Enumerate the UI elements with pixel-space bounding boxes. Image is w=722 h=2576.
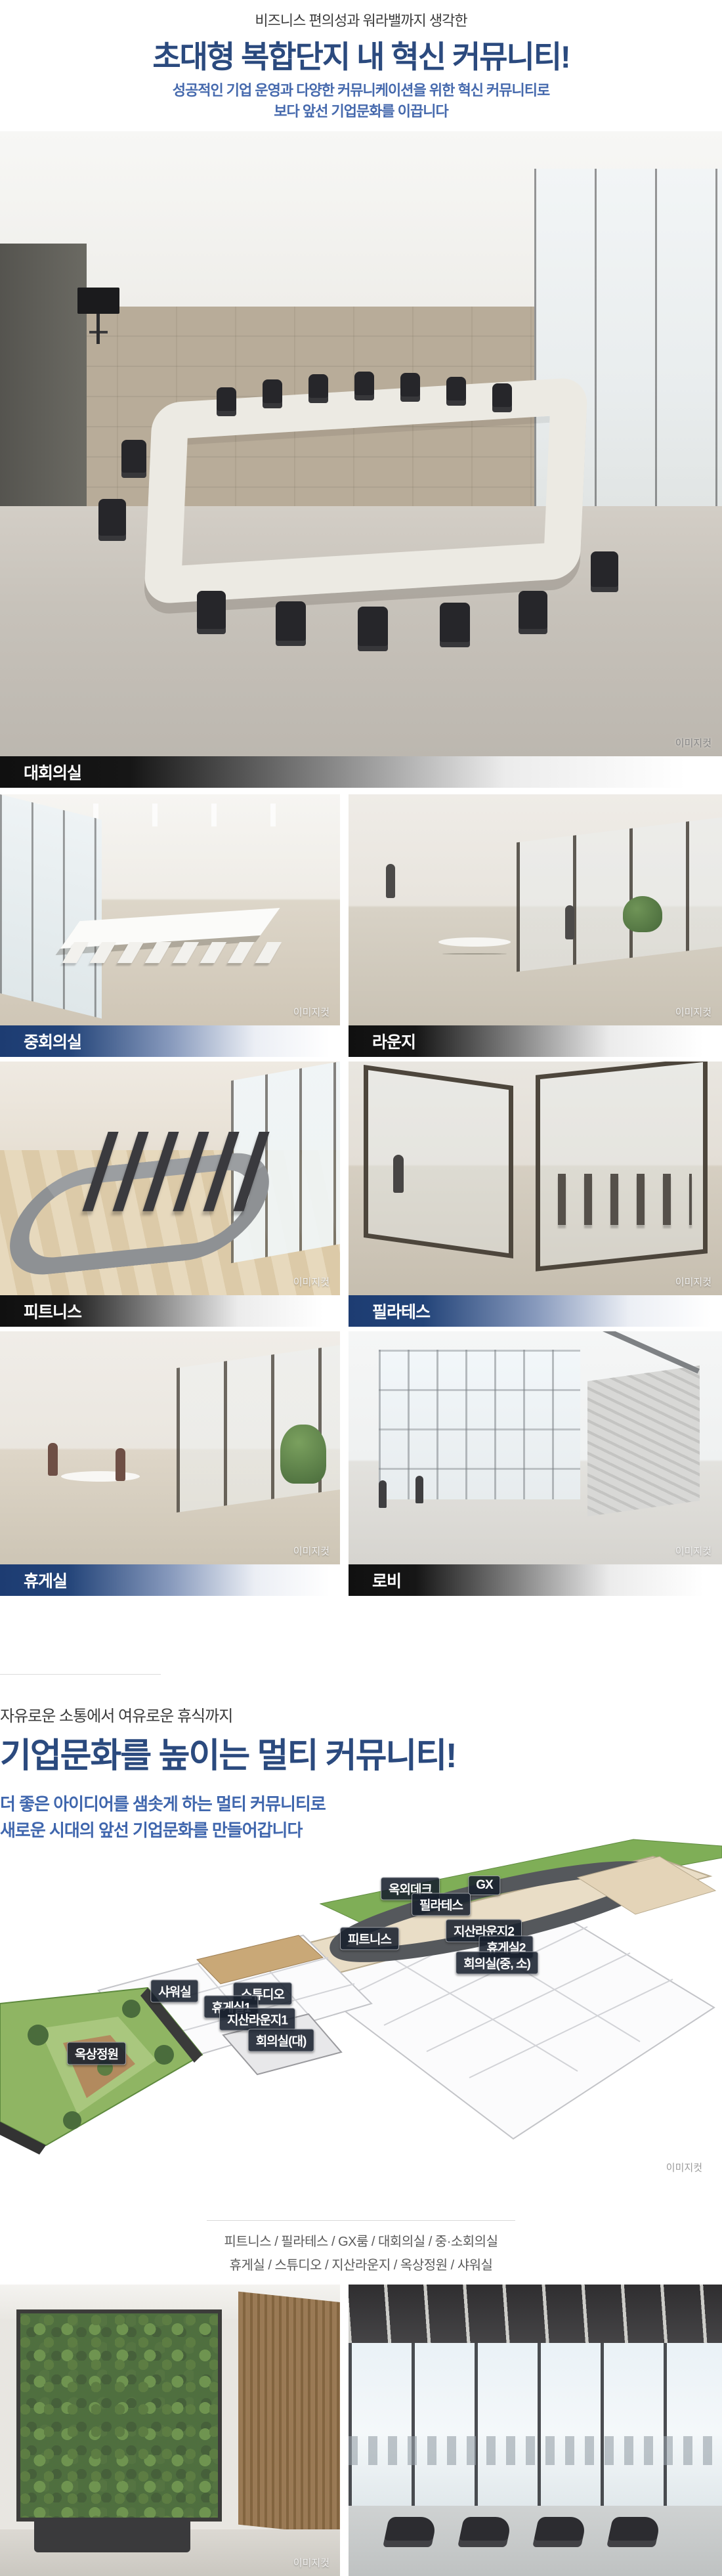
gallery-label-bar: 로비 xyxy=(349,1564,722,1596)
chair xyxy=(263,379,282,408)
chair xyxy=(400,373,420,402)
watermark-label: 이미지컷 xyxy=(293,1275,329,1289)
watermark-label: 이미지컷 xyxy=(675,736,711,750)
caption-divider xyxy=(207,2220,515,2221)
gallery-label-bar: 휴게실 xyxy=(0,1564,340,1596)
hero-label-bar: 대회의실 xyxy=(0,756,722,788)
gallery-label: 피트니스 xyxy=(24,1299,81,1323)
floorplan-illustration: 옥외데크 GX 필라테스 피트니스 지산라운지2 휴게실2 회의실(중, 소) … xyxy=(0,1838,722,2206)
window-wall xyxy=(0,794,102,1018)
person-silhouette xyxy=(393,1155,404,1193)
pilates-equipment xyxy=(558,1174,692,1225)
chair xyxy=(446,377,466,406)
chair xyxy=(519,591,547,634)
lounge-table xyxy=(438,937,511,947)
chair xyxy=(440,603,470,647)
treadmill xyxy=(457,2517,513,2547)
chair xyxy=(197,591,226,634)
gym-window-scene xyxy=(349,2285,722,2576)
plant xyxy=(280,1425,326,1484)
gallery-label-bar: 피트니스 xyxy=(0,1295,340,1327)
stair-railing xyxy=(595,1331,700,1373)
gallery-label-bar: 필라테스 xyxy=(349,1295,722,1327)
chair xyxy=(121,440,146,478)
person-silhouette xyxy=(386,864,395,898)
intro-subtitle: 성공적인 기업 운영과 다양한 커뮤니케이션을 위한 혁신 커뮤니티로 보다 앞… xyxy=(0,80,722,122)
meeting-room-scene xyxy=(0,794,340,1025)
plan-label-meeting-ms: 회의실(중, 소) xyxy=(456,1952,538,1975)
watermark-label: 이미지컷 xyxy=(666,2160,702,2174)
lounge-scene xyxy=(349,794,722,1025)
treadmill xyxy=(532,2517,587,2547)
gallery-label: 휴게실 xyxy=(24,1568,67,1592)
gallery-photo-rest-area: 이미지컷 xyxy=(0,1331,340,1564)
page: 비즈니스 편의성과 워라밸까지 생각한 초대형 복합단지 내 혁신 커뮤니티! … xyxy=(0,0,722,2576)
gallery-photo-lounge: 이미지컷 xyxy=(349,794,722,1025)
plan-label-gx: GX xyxy=(468,1876,500,1895)
person-silhouette xyxy=(379,1480,387,1508)
dark-ceiling xyxy=(349,2285,722,2343)
window-wall xyxy=(379,1350,580,1499)
bottom-photo-gym-view xyxy=(349,2285,722,2576)
chair xyxy=(358,607,388,651)
section2-title: 기업문화를 높이는 멀티 커뮤니티! xyxy=(0,1728,456,1777)
person-silhouette xyxy=(415,1476,423,1503)
gallery-photo-meeting-room: 이미지컷 xyxy=(0,794,340,1025)
green-wall-scene xyxy=(0,2285,340,2576)
gallery-photo-pilates: 이미지컷 xyxy=(349,1062,722,1295)
facility-caption: 피트니스 / 필라테스 / GX룸 / 대회의실 / 중·소회의실 휴게실 / … xyxy=(0,2220,722,2277)
hero-photo-conference-room: 이미지컷 xyxy=(0,131,722,756)
wood-slat-wall xyxy=(238,2291,340,2535)
rest-area-scene xyxy=(0,1331,340,1564)
hero-label: 대회의실 xyxy=(24,760,81,784)
gallery-label-bar: 라운지 xyxy=(349,1025,722,1057)
section2-subtitle: 더 좋은 아이디어를 샘솟게 하는 멀티 커뮤니티로 새로운 시대의 앞선 기업… xyxy=(0,1791,326,1844)
plan-label-roof-garden: 옥상정원 xyxy=(67,2042,126,2065)
gallery-label-bar: 중회의실 xyxy=(0,1025,340,1057)
caption-line1: 피트니스 / 필라테스 / GX룸 / 대회의실 / 중·소회의실 xyxy=(0,2230,722,2254)
plan-label-meeting-large: 회의실(대) xyxy=(248,2029,314,2052)
chair xyxy=(354,372,374,400)
section2-subtitle-line1: 더 좋은 아이디어를 샘솟게 하는 멀티 커뮤니티로 xyxy=(0,1791,326,1817)
plant-wall xyxy=(20,2313,217,2518)
intro-subtitle-line1: 성공적인 기업 운영과 다양한 커뮤니케이션을 위한 혁신 커뮤니티로 xyxy=(0,80,722,101)
gallery-photo-fitness: 이미지컷 xyxy=(0,1062,340,1295)
bottom-photo-green-wall: 이미지컷 xyxy=(0,2285,340,2576)
person-silhouette xyxy=(565,905,574,939)
page-title: 초대형 복합단지 내 혁신 커뮤니티! xyxy=(0,32,722,77)
caption-line2: 휴게실 / 스튜디오 / 지산라운지 / 옥상정원 / 샤워실 xyxy=(0,2254,722,2277)
gallery-label: 로비 xyxy=(372,1568,401,1592)
treadmill xyxy=(383,2517,438,2547)
chair xyxy=(98,499,126,541)
person-silhouette xyxy=(48,1443,58,1476)
hero-display-screen xyxy=(77,288,119,314)
gym-machines xyxy=(82,1132,271,1211)
plan-label-fitness: 피트니스 xyxy=(340,1927,399,1950)
section2-eyebrow: 자유로운 소통에서 여유로운 휴식까지 xyxy=(0,1703,232,1726)
city-skyline xyxy=(349,2436,722,2465)
gallery-photo-lobby: 이미지컷 xyxy=(349,1331,722,1564)
gallery-label: 중회의실 xyxy=(24,1029,81,1053)
gallery-label: 필라테스 xyxy=(372,1299,430,1323)
intro-header: 비즈니스 편의성과 워라밸까지 생각한 초대형 복합단지 내 혁신 커뮤니티! … xyxy=(0,0,722,131)
watermark-label: 이미지컷 xyxy=(675,1544,711,1558)
lobby-scene xyxy=(349,1331,722,1564)
plant xyxy=(623,896,662,932)
watermark-label: 이미지컷 xyxy=(293,2556,329,2569)
watermark-label: 이미지컷 xyxy=(293,1544,329,1558)
pilates-scene xyxy=(349,1062,722,1295)
plan-label-pilates: 필라테스 xyxy=(412,1893,471,1916)
watermark-label: 이미지컷 xyxy=(293,1005,329,1019)
chair xyxy=(492,383,512,412)
plan-label-shower: 샤워실 xyxy=(150,1980,198,2003)
staircase xyxy=(587,1365,700,1516)
intro-eyebrow: 비즈니스 편의성과 워라밸까지 생각한 xyxy=(0,9,722,30)
glass-frame xyxy=(364,1065,513,1258)
floorplan-drawing xyxy=(0,1838,722,2206)
hero-conference-table xyxy=(144,377,588,605)
watermark-label: 이미지컷 xyxy=(675,1005,711,1019)
partial-divider xyxy=(0,1674,161,1675)
intro-subtitle-line2: 보다 앞선 기업문화를 이끕니다 xyxy=(0,101,722,122)
glass-frame xyxy=(536,1062,708,1272)
watermark-label: 이미지컷 xyxy=(675,1275,711,1289)
window-wall xyxy=(349,2337,722,2512)
gallery-label: 라운지 xyxy=(372,1029,415,1053)
round-table xyxy=(61,1471,140,1482)
chair xyxy=(217,387,236,416)
chairs-row xyxy=(62,942,284,963)
chair xyxy=(276,601,306,646)
glass-partition xyxy=(517,817,722,972)
fitness-scene xyxy=(0,1062,340,1295)
treadmill xyxy=(606,2517,662,2547)
plan-label-lounge1: 지산라운지1 xyxy=(219,2008,295,2031)
person-silhouette xyxy=(116,1448,125,1481)
chair xyxy=(591,551,618,592)
sofa xyxy=(34,2518,190,2552)
chair xyxy=(308,374,328,403)
